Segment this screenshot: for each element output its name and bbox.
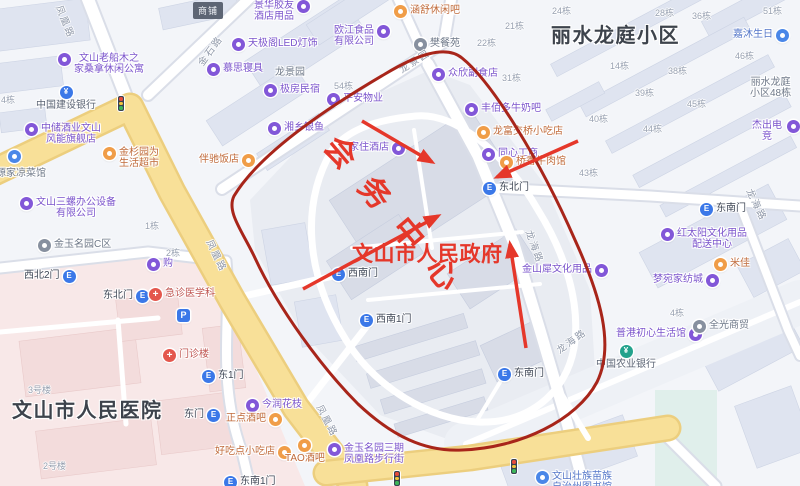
- poi-label-text: 购: [163, 258, 173, 269]
- gate-poi-icon: E: [700, 203, 713, 216]
- poi-milk-bar[interactable]: 丰佰多牛奶吧: [465, 103, 541, 116]
- purple-poi-icon: [465, 103, 478, 116]
- purple-poi-icon: [328, 443, 341, 456]
- poi-label-text: 极房民宿: [280, 84, 320, 95]
- poi-mattress[interactable]: 慕思寝具: [207, 63, 263, 76]
- poi-home-textiles[interactable]: 梦宛家纺城: [653, 274, 719, 287]
- building-number: 36栋: [692, 9, 711, 22]
- government-annotation: 文山市人民政府: [352, 238, 503, 268]
- gate-southeast-1[interactable]: E东南1门: [224, 476, 276, 486]
- medical-poi-icon: +: [163, 349, 176, 362]
- poi-label-text: 东1门: [218, 370, 244, 381]
- building-number: 14栋: [610, 59, 629, 72]
- poi-label-text: 金山犀文化用品: [522, 264, 592, 275]
- gate-poi-icon: E: [136, 290, 149, 303]
- poi-label-text: 景华胶友 酒店用品: [254, 0, 294, 22]
- poi-label-text: 东南1门: [240, 476, 276, 486]
- purple-poi-icon: [706, 274, 719, 287]
- poi-label-text: 东门: [184, 409, 204, 420]
- gate-poi-icon: E: [207, 409, 220, 422]
- poi-office-equipment[interactable]: 文山三螺办公设备 有限公司: [20, 197, 116, 219]
- poi-emergency-dept[interactable]: +急诊医学科: [149, 288, 215, 301]
- area-lishui-48[interactable]: 丽水龙庭 小区48栋: [750, 77, 791, 99]
- poi-property[interactable]: 平安物业: [327, 93, 383, 106]
- building-number: 22栋: [477, 36, 496, 49]
- poi-label-text: 红太阳文化用品 配送中心: [677, 228, 747, 250]
- purple-poi-icon: [264, 84, 277, 97]
- poi-label-text: 伴驰饭店: [199, 154, 239, 165]
- gate-southeast-district[interactable]: E东南门: [700, 203, 746, 216]
- medical-poi-icon: +: [149, 288, 162, 301]
- purple-poi-icon: [327, 93, 340, 106]
- poi-label-text: 正点酒吧: [226, 413, 266, 424]
- orange-poi-icon: [500, 156, 513, 169]
- poi-bar-zhengdian[interactable]: 正点酒吧: [226, 413, 282, 426]
- poi-label-text: 西北2门: [24, 270, 60, 281]
- hospital-label: 文山市人民医院: [12, 394, 163, 423]
- residential-district-label: 丽水龙庭小区: [551, 19, 680, 48]
- poi-ccb-bank[interactable]: ¥中国建设银行: [36, 86, 96, 111]
- gray-poi-icon: [693, 320, 706, 333]
- poi-label-text: 门诊楼: [179, 349, 209, 360]
- poi-liquor-store[interactable]: 中储酒业文山 风能旗舰店: [25, 123, 101, 145]
- gate-poi-icon: E: [498, 368, 511, 381]
- poi-abc-bank[interactable]: ¥中国农业银行: [596, 345, 656, 370]
- blue-poi-icon: [536, 471, 549, 484]
- purple-poi-icon: [297, 0, 310, 13]
- poi-label-text: 众欣副食店: [448, 68, 498, 79]
- poi-shop-gou[interactable]: 购: [147, 258, 173, 271]
- gate-northwest-2[interactable]: 西北2门E: [24, 270, 76, 283]
- poi-snack-shop[interactable]: 龙富交桥小吃店: [477, 126, 563, 139]
- purple-poi-icon: [377, 25, 390, 38]
- purple-poi-icon: [25, 123, 38, 136]
- building-number: 24栋: [552, 4, 571, 17]
- building-number: 43栋: [579, 166, 598, 179]
- poi-beef-restaurant[interactable]: 桥香牛肉馆: [500, 156, 566, 169]
- abc-poi-icon: ¥: [620, 345, 633, 358]
- orange-poi-icon: [394, 5, 407, 18]
- poi-label-text: 好吃点小吃店: [215, 446, 275, 457]
- traffic-light-icon: [117, 95, 125, 112]
- poi-label-text: 中储酒业文山 风能旗舰店: [41, 123, 101, 145]
- building-number: 31栋: [502, 71, 521, 84]
- poi-grocery[interactable]: 众欣副食店: [432, 68, 498, 81]
- poi-food-company[interactable]: 欧江食品 有限公司: [334, 25, 390, 47]
- poi-mijia[interactable]: 米佳: [714, 258, 750, 271]
- poi-label-text: 涵舒休闲吧: [410, 5, 460, 16]
- poi-outpatient-building[interactable]: +门诊楼: [163, 349, 209, 362]
- gate-southwest-1[interactable]: E西南1门: [360, 314, 412, 327]
- gate-east-1[interactable]: E东1门: [202, 370, 244, 383]
- area-jinyu-c[interactable]: 金玉名园C区: [38, 239, 111, 252]
- purple-poi-icon: [207, 63, 220, 76]
- poi-tao-bar[interactable]: TAO酒吧: [285, 439, 325, 464]
- poi-label-text: 食源家凉菜馆: [0, 168, 46, 179]
- gate-poi-icon: E: [483, 182, 496, 195]
- purple-poi-icon: [147, 258, 160, 271]
- ccb-poi-icon: ¥: [60, 86, 73, 99]
- poi-label-text: 龙富交桥小吃店: [493, 126, 563, 137]
- road-label: 龙海路: [523, 228, 548, 265]
- poi-label-text: 今润花枝: [262, 399, 302, 410]
- poi-label-text: 文山壮族苗族 自治州图书馆: [552, 471, 612, 486]
- purple-poi-icon: [482, 148, 495, 161]
- poi-label-text: 西南1门: [376, 314, 412, 325]
- building-number: 54栋: [334, 79, 353, 92]
- gate-poi-icon: E: [202, 370, 215, 383]
- purple-poi-icon: [432, 68, 445, 81]
- poi-label-text: 慕思寝具: [223, 63, 263, 74]
- poi-label-text: 平安物业: [343, 93, 383, 104]
- poi-label-text: 湘乡银鱼: [284, 122, 324, 133]
- gray-poi-icon: [38, 239, 51, 252]
- poi-label-text: 桥香牛肉馆: [516, 156, 566, 167]
- gate-northeast-compound[interactable]: E东北门: [483, 182, 529, 195]
- poi-esports[interactable]: 杰出电竞: [750, 120, 800, 142]
- poi-label-text: 杰出电竞: [750, 120, 784, 142]
- building-number: 40栋: [589, 112, 608, 125]
- poi-label-text: 樊餐苑: [430, 38, 460, 49]
- gate-northeast-hospital[interactable]: 东北门E: [103, 290, 149, 303]
- poi-label-text: 东南门: [716, 203, 746, 214]
- poi-label-text: 嘉沐生日: [733, 29, 773, 40]
- poi-label-text: 米佳: [730, 258, 750, 269]
- road-label: 凤凰路: [53, 3, 79, 40]
- orange-poi-icon: [477, 126, 490, 139]
- poi-label-text: 中国农业银行: [596, 359, 656, 370]
- poi-label-text: 龙景园: [275, 67, 305, 78]
- orange-poi-icon: [242, 154, 255, 167]
- poi-label-text: 东北门: [103, 290, 133, 301]
- poi-quanguang[interactable]: 全光商贸: [693, 320, 749, 333]
- purple-poi-icon: [58, 53, 71, 66]
- building-number: 51栋: [763, 4, 782, 17]
- poi-hotel-supplies[interactable]: 景华胶友 酒店用品: [254, 0, 310, 22]
- building-number: 4栋: [670, 306, 684, 319]
- poi-label-text: 全光商贸: [709, 320, 749, 331]
- poi-supermarket[interactable]: 金杉园为 生活超市: [103, 147, 159, 169]
- area-longjingyuan[interactable]: 龙景园: [275, 67, 305, 78]
- purple-poi-icon: [246, 399, 259, 412]
- poi-cold-dish[interactable]: 食源家凉菜馆: [0, 168, 46, 179]
- poi-label-text: 丰佰多牛奶吧: [481, 103, 541, 114]
- orange-poi-icon: [298, 439, 311, 452]
- poi-pedestrian-street[interactable]: 金玉名园三期 凤凰路步行街: [328, 443, 404, 465]
- gate-poi-icon: E: [63, 270, 76, 283]
- poi-led-lighting[interactable]: 天极阁LED灯饰: [232, 38, 317, 51]
- poi-birthday-shop[interactable]: 嘉沐生日: [733, 29, 789, 42]
- shop-badge: 商铺: [193, 2, 223, 19]
- building-number: 38栋: [668, 64, 687, 77]
- poi-label-text: 西南门: [348, 268, 378, 279]
- gate-southwest[interactable]: E西南门: [332, 268, 378, 281]
- poi-label-text: 文山老船木之 家桑拿休闲公寓: [74, 53, 144, 75]
- orange-poi-icon: [103, 147, 116, 160]
- map-canvas[interactable]: 商铺 景华胶友 酒店用品天极阁LED灯饰欧江食品 有限公司涵舒休闲吧樊餐苑众欣副…: [0, 0, 800, 486]
- building-number: 28栋: [655, 6, 674, 19]
- parking-marker[interactable]: P: [177, 309, 190, 322]
- poi-label-text: 欧江食品 有限公司: [334, 25, 374, 47]
- poi-snack-haochidian[interactable]: 好吃点小吃店: [215, 446, 291, 459]
- building-number: 4栋: [1, 93, 15, 106]
- purple-poi-icon: [232, 38, 245, 51]
- poi-homestay[interactable]: 极房民宿: [264, 84, 320, 97]
- traffic-light-icon: [393, 470, 401, 486]
- purple-poi-icon: [787, 120, 800, 133]
- building-number: 46栋: [735, 49, 754, 62]
- traffic-light-icon: [510, 458, 518, 475]
- poi-label-text: 东南门: [514, 368, 544, 379]
- poi-label-text: 丽水龙庭 小区48栋: [750, 77, 791, 99]
- building-number: 1栋: [145, 219, 159, 232]
- purple-poi-icon: [268, 122, 281, 135]
- poi-label-text: 金玉名园三期 凤凰路步行街: [344, 443, 404, 465]
- poi-label-text: 金杉园为 生活超市: [119, 147, 159, 169]
- poi-lounge-bar[interactable]: 涵舒休闲吧: [394, 5, 460, 18]
- building-number: 39栋: [635, 86, 654, 99]
- road-label: 凤凰路: [314, 402, 343, 439]
- gate-poi-icon: E: [360, 314, 373, 327]
- poi-banchi-restaurant[interactable]: 伴驰饭店: [199, 154, 255, 167]
- poi-stationery-distribution[interactable]: 红太阳文化用品 配送中心: [661, 228, 747, 250]
- blue-poi-icon: [8, 150, 21, 163]
- purple-poi-icon: [595, 264, 608, 277]
- gate-poi-icon: E: [332, 268, 345, 281]
- road-label: 龙海路: [743, 186, 771, 223]
- building-number: 21栋: [505, 19, 524, 32]
- purple-poi-icon: [661, 228, 674, 241]
- poi-label-text: 梦宛家纺城: [653, 274, 703, 285]
- building-number: 2栋: [166, 246, 180, 259]
- poi-flower-shop[interactable]: 今润花枝: [246, 399, 302, 412]
- gate-southeast-compound[interactable]: E东南门: [498, 368, 544, 381]
- road-label: 凤凰路: [203, 237, 231, 274]
- poi-silverfish[interactable]: 湘乡银鱼: [268, 122, 324, 135]
- poi-lifestyle-shop[interactable]: 普港初心生活馆: [616, 328, 702, 341]
- poi-label-text: 急诊医学科: [165, 288, 215, 299]
- purple-poi-icon: [20, 197, 33, 210]
- orange-poi-icon: [269, 413, 282, 426]
- poi-label-text: 东北门: [499, 182, 529, 193]
- building-number: 2号楼: [43, 459, 66, 472]
- building-number: 45栋: [687, 97, 706, 110]
- poi-blue-dot[interactable]: [8, 150, 21, 163]
- poi-sauna-apartment[interactable]: 文山老船木之 家桑拿休闲公寓: [58, 53, 144, 75]
- poi-stationery-jinshanxi[interactable]: 金山犀文化用品: [522, 264, 608, 277]
- poi-label-text: TAO酒吧: [285, 453, 325, 464]
- gate-east[interactable]: 东门E: [184, 409, 220, 422]
- orange-poi-icon: [714, 258, 727, 271]
- poi-label-text: 天极阁LED灯饰: [248, 38, 317, 49]
- parking-poi-icon: P: [177, 309, 190, 322]
- poi-label-text: 中国建设银行: [36, 100, 96, 111]
- gate-poi-icon: E: [224, 476, 237, 486]
- poi-label-text: 金玉名园C区: [54, 239, 111, 250]
- poi-label-text: 文山三螺办公设备 有限公司: [36, 197, 116, 219]
- road-label: 龙海路: [553, 325, 589, 357]
- poi-library[interactable]: 文山壮族苗族 自治州图书馆: [536, 471, 612, 486]
- blue-poi-icon: [776, 29, 789, 42]
- poi-label-text: 普港初心生活馆: [616, 328, 686, 339]
- building-number: 44栋: [643, 122, 662, 135]
- purple-poi-icon: [392, 142, 405, 155]
